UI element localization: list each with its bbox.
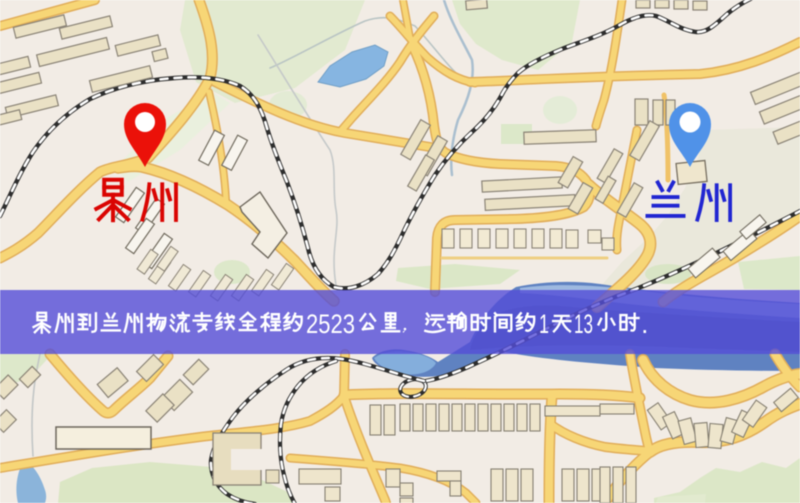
svg-text:13: 13 <box>574 309 593 339</box>
svg-text:1: 1 <box>539 309 549 339</box>
svg-text:.: . <box>641 309 649 339</box>
svg-text:2523: 2523 <box>306 309 355 339</box>
